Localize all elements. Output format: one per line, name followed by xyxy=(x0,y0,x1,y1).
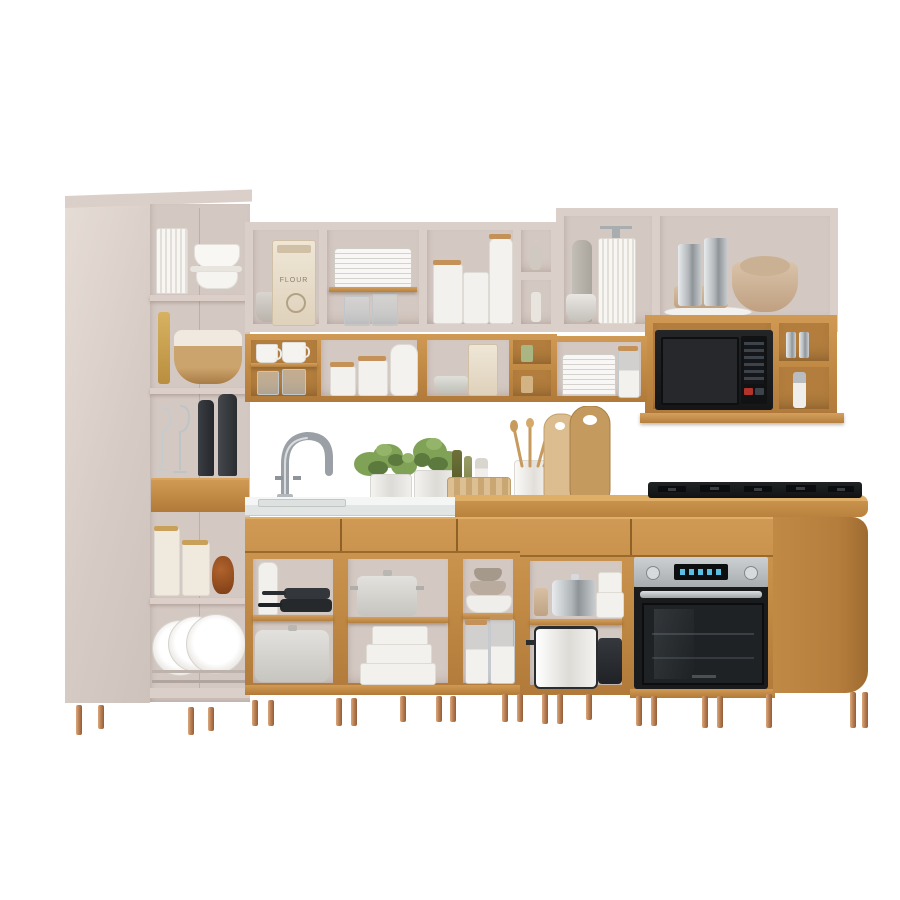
gold-lid xyxy=(154,526,178,531)
white-canister xyxy=(463,272,489,324)
microwave-door-glass xyxy=(661,337,739,405)
press-bar xyxy=(600,226,632,229)
flour-jar xyxy=(465,624,489,684)
pepper-shaker xyxy=(799,332,809,358)
cabinet-leg xyxy=(586,694,592,720)
rack-bar xyxy=(152,670,248,673)
pan-handle xyxy=(262,591,286,595)
cabinet-leg xyxy=(636,696,642,726)
counter-white xyxy=(245,497,457,515)
glass-tumbler xyxy=(257,371,279,395)
cabinet-leg xyxy=(517,694,523,722)
metal-canister xyxy=(704,238,728,306)
jug-lid xyxy=(489,234,511,239)
base-shelf-board xyxy=(253,615,333,621)
plate-stack xyxy=(334,248,412,288)
pot-lid-knob xyxy=(383,570,392,576)
cabinet-leg xyxy=(98,705,104,729)
cabinet-leg xyxy=(268,700,274,726)
cabinet-leg xyxy=(651,696,657,726)
cream-canister xyxy=(182,542,210,596)
bowl-stack xyxy=(474,568,502,581)
cabinet-leg xyxy=(336,698,342,726)
built-in-oven xyxy=(634,557,768,689)
drawer-seam xyxy=(456,519,458,551)
microwave-buttons xyxy=(744,342,764,384)
cabinet-leg xyxy=(351,698,357,726)
sugar-jar xyxy=(330,366,356,396)
oven-knob xyxy=(744,566,758,580)
cabinet-leg xyxy=(862,692,868,728)
cabinet-leg xyxy=(502,694,508,722)
oven-knob xyxy=(646,566,660,580)
dark-bottle xyxy=(218,394,237,476)
plate-rack xyxy=(150,608,250,688)
cabinet-leg xyxy=(208,707,214,731)
pot-handle xyxy=(526,640,534,645)
jar-lid xyxy=(490,615,513,620)
flour-bag: FLOUR xyxy=(272,240,316,326)
small-canister xyxy=(534,588,548,616)
jar-lid xyxy=(358,356,386,361)
mug xyxy=(256,344,278,363)
right-end-panel xyxy=(773,517,868,693)
cabinet-leg xyxy=(702,696,708,728)
canister-lid xyxy=(618,346,638,351)
cabinet-leg xyxy=(252,700,258,726)
amber-vase xyxy=(212,556,234,594)
stock-pot xyxy=(357,576,417,616)
cabinet-leg xyxy=(76,705,82,735)
frying-pan xyxy=(280,599,332,612)
bowl-stack xyxy=(466,595,512,613)
drawer-seam xyxy=(630,519,632,555)
cup-stack xyxy=(190,244,244,292)
base-bottom-board xyxy=(245,685,520,695)
microwave xyxy=(655,330,773,410)
bag-stamp xyxy=(286,293,306,313)
gold-lid xyxy=(182,540,208,545)
container-stack xyxy=(598,572,622,594)
rack-bar xyxy=(152,680,248,683)
kitchen-set-photo: FLOUR xyxy=(0,0,900,900)
burner-cap xyxy=(796,487,805,490)
enamel-stockpot xyxy=(534,626,598,689)
salt-shaker xyxy=(786,332,796,358)
container-stack xyxy=(366,644,432,665)
marble-bowls xyxy=(566,294,596,322)
base-shelf-board xyxy=(348,617,448,623)
black-pot xyxy=(598,638,622,684)
press-knob xyxy=(612,228,620,238)
burner-cap xyxy=(837,488,845,491)
faucet xyxy=(263,420,351,504)
ceramic-jug xyxy=(390,344,418,396)
base-shelf-board xyxy=(530,619,622,625)
drawer-bottom-line xyxy=(245,551,520,553)
wine-glasses xyxy=(152,404,196,476)
burner-cap xyxy=(668,488,676,491)
cabinet-leg xyxy=(766,694,772,728)
canister-lid xyxy=(433,260,461,265)
container-stack xyxy=(372,626,428,646)
pantry-bottom-board xyxy=(150,688,250,698)
cabinet-leg xyxy=(450,696,456,722)
frying-pan xyxy=(284,588,330,599)
flour-bag-label: FLOUR xyxy=(273,277,315,284)
pan-handle xyxy=(258,603,282,607)
cutting-boards xyxy=(540,406,622,508)
small-bottle xyxy=(531,292,541,322)
oven-glass-reflection xyxy=(654,609,694,679)
cabinet-leg xyxy=(850,692,856,728)
french-press-canister xyxy=(598,238,636,324)
jar-lid xyxy=(330,362,354,367)
bag-crinkle xyxy=(277,245,311,253)
cabinet-leg xyxy=(188,707,194,735)
container-stack xyxy=(360,663,436,685)
drawer-top-highlight xyxy=(520,517,775,519)
microwave-control-panel xyxy=(741,336,767,404)
white-canister xyxy=(433,264,463,324)
oven-handle xyxy=(640,591,762,598)
mug xyxy=(282,342,306,363)
metal-canister xyxy=(678,244,702,306)
spice-jar xyxy=(521,376,533,393)
counter-wood xyxy=(455,495,868,517)
milk-jug xyxy=(489,238,513,324)
dark-bottle xyxy=(198,400,214,476)
burner-cap xyxy=(710,487,719,490)
glass-canister xyxy=(618,350,640,398)
pantry-drawer-front xyxy=(151,478,249,512)
sink xyxy=(258,499,346,507)
gas-cooktop xyxy=(648,482,862,498)
glass-tumbler xyxy=(344,296,370,326)
oven-display xyxy=(674,564,728,580)
oven-brand-mark xyxy=(692,675,716,678)
pantry-shelf-board xyxy=(150,388,250,394)
drawer-top-highlight xyxy=(245,517,520,519)
microwave-start-button xyxy=(744,388,753,395)
pot-lid-knob xyxy=(288,625,297,631)
pantry-shelf-board xyxy=(150,295,250,301)
drawer-seam xyxy=(340,519,342,551)
cabinet-leg xyxy=(557,694,563,724)
pot-handle xyxy=(350,586,358,590)
microwave-bottom-board xyxy=(640,413,844,423)
glass-tumbler xyxy=(282,369,306,395)
microwave-button xyxy=(755,388,764,395)
oil-bottle xyxy=(158,312,170,384)
pantry-side-panel xyxy=(65,203,150,703)
white-bottle xyxy=(258,562,278,615)
flour-jar xyxy=(490,619,515,684)
oven-door-glass xyxy=(642,603,764,685)
pot-handle xyxy=(416,586,424,590)
pantry-shelf-board xyxy=(150,598,250,604)
paper-bag xyxy=(468,344,498,396)
large-pot xyxy=(255,630,329,682)
cream-canister xyxy=(154,528,180,596)
bowl-stack xyxy=(470,581,506,595)
mini-wood-shelf xyxy=(251,363,317,367)
cabinet-leg xyxy=(542,694,548,724)
ribbed-canister xyxy=(156,228,188,294)
grinder xyxy=(793,372,806,408)
pot-lid-knob xyxy=(571,574,579,580)
cabinet-leg xyxy=(436,696,442,722)
glass-tumbler xyxy=(372,294,398,326)
oven-display-digits xyxy=(680,569,722,575)
small-vase xyxy=(529,246,542,270)
plate-stack xyxy=(562,354,616,396)
container-stack xyxy=(596,592,624,618)
cabinet-leg xyxy=(400,696,406,722)
steel-pot xyxy=(552,580,596,616)
burner-cap xyxy=(754,488,762,491)
sugar-jar xyxy=(358,360,388,396)
wooden-bowl xyxy=(174,330,242,384)
spice-jar xyxy=(521,345,533,362)
jar-lid xyxy=(465,620,487,625)
standing-plate xyxy=(186,614,246,674)
beige-bowl-inner xyxy=(740,256,790,276)
mini-wood-shelf xyxy=(329,287,417,292)
cabinet-leg xyxy=(717,696,723,728)
